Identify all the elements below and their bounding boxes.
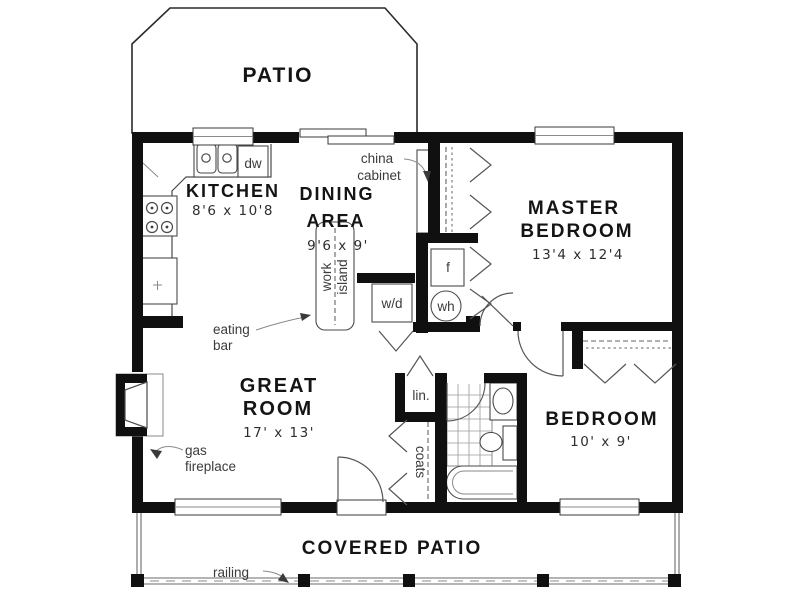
kitchen-dims: 8'6 x 10'8 [192, 203, 274, 219]
master-bedroom-door [480, 293, 513, 326]
master-bedroom-dims: 13'4 x 12'4 [532, 247, 624, 263]
covered-patio-label: COVERED PATIO [302, 538, 482, 559]
water-heater-label: wh [436, 299, 454, 314]
dining-label-2: AREA [306, 211, 365, 231]
bathtub [447, 466, 518, 499]
linen-closet-door [407, 356, 433, 376]
front-door-threshold [337, 500, 386, 515]
great-room-label-2: ROOM [243, 398, 313, 420]
china-cabinet-box [417, 150, 429, 233]
utility-closet-bifold [470, 247, 491, 319]
kitchen-label: KITCHEN [186, 181, 280, 201]
eating-bar-label-2: bar [213, 338, 233, 353]
china-cabinet-label-1: china [361, 151, 394, 166]
eating-bar-leader [256, 317, 305, 330]
stove [142, 196, 177, 236]
bedroom-dims: 10' x 9' [570, 434, 632, 450]
great-room-dims: 17' x 13' [243, 425, 315, 441]
gas-fireplace-label-1: gas [185, 443, 207, 458]
linen-closet-label: lin. [412, 388, 429, 403]
bedroom-window [560, 499, 639, 515]
front-door [338, 457, 383, 502]
work-island-label-1: work [319, 263, 334, 293]
master-bedroom-label-2: BEDROOM [520, 221, 633, 242]
china-cabinet-label-2: cabinet [357, 168, 401, 183]
railing-label: railing [213, 565, 249, 580]
kitchen-sink [194, 140, 238, 177]
washer-dryer-door [379, 331, 413, 351]
bathroom-sink [490, 383, 517, 420]
coats-closet-bifold [389, 420, 407, 505]
bathroom-door-gap [447, 372, 484, 384]
dishwasher-label: dw [244, 156, 262, 171]
dining-dims: 9'6 x 9' [307, 238, 369, 254]
master-bedroom-window [535, 127, 614, 144]
master-closet-bifold [470, 148, 491, 229]
gas-fireplace-label-2: fireplace [185, 459, 236, 474]
great-room-label-1: GREAT [240, 375, 319, 397]
bathroom-door [447, 383, 485, 421]
work-island-label-2: island [335, 259, 350, 294]
gas-fireplace-unit [116, 372, 163, 436]
dining-label-1: DINING [300, 184, 375, 204]
great-room-window [175, 499, 281, 515]
eating-bar-label-1: eating [213, 322, 250, 337]
bedroom-closet-bifold [584, 364, 676, 383]
bathroom-tile-grid [447, 383, 492, 466]
washer-dryer-label: w/d [380, 296, 402, 311]
patio-sliding-door [299, 129, 394, 144]
refrigerator [142, 258, 177, 304]
floor-plan-canvas: PATIO KITCHEN 8'6 x 10'8 DINING AREA 9'6… [0, 0, 800, 600]
coats-closet-label: coats [413, 446, 428, 479]
leader-lines [150, 159, 431, 583]
furnace-label: f [446, 260, 450, 275]
kitchen-window [193, 128, 253, 145]
patio-label: PATIO [242, 64, 313, 87]
floor-plan-page: PATIO KITCHEN 8'6 x 10'8 DINING AREA 9'6… [0, 0, 800, 600]
master-bedroom-label-1: MASTER [528, 198, 620, 219]
bedroom-label: BEDROOM [545, 409, 658, 430]
bedroom-door [518, 331, 563, 376]
